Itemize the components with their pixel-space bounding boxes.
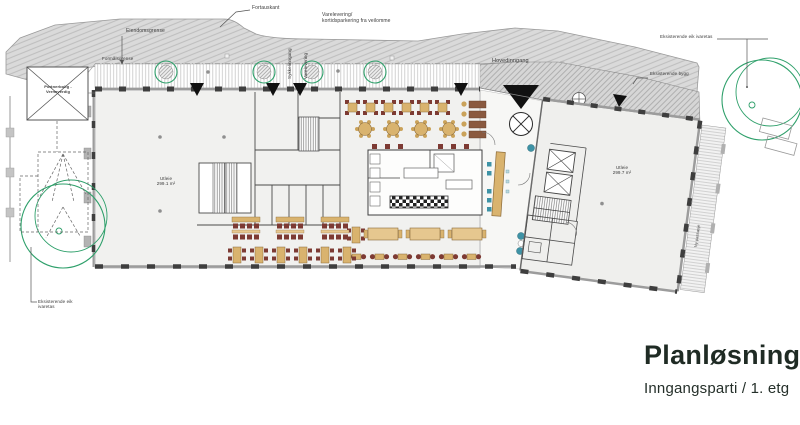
stair-main bbox=[199, 163, 251, 213]
oak-tree-right-icon bbox=[722, 58, 800, 140]
label-portnerbolig: Portnerbolig - Verneverdig bbox=[36, 85, 80, 95]
label-varelevering-note: Varelevering/ kortidsparkering fra veilo… bbox=[322, 12, 390, 24]
label-sykkelinngang: Sykkelinngang bbox=[287, 48, 292, 79]
label-utleie-left: Utleie 299.1 m² bbox=[138, 176, 194, 187]
page-title: Planløsning bbox=[644, 340, 800, 371]
canopy-strip bbox=[82, 64, 480, 89]
revolving-door-icon bbox=[510, 113, 533, 136]
label-eksisterende-eik-bottom: Eksisterende eik ivaretas bbox=[38, 299, 73, 310]
label-eksisterende-bygg: Eksisterende bygg bbox=[650, 71, 689, 76]
label-hovedinngang: Hovedinngang bbox=[492, 58, 529, 65]
label-utleie-right: Utleie 299.7 m² bbox=[594, 165, 650, 176]
planter bbox=[518, 233, 525, 240]
label-fortauskant: Fortauskant bbox=[252, 5, 280, 11]
label-formalsgrense: Formålsgrense bbox=[102, 56, 133, 61]
label-eksisterende-eik-top: Eksisterende eik ivaretas bbox=[660, 34, 713, 39]
stair-secondary bbox=[299, 117, 319, 151]
label-eiendomsgrense: Eiendomsgrense bbox=[126, 28, 165, 34]
floor-plan-page: Fortauskant Varelevering/ kortidsparkeri… bbox=[0, 0, 800, 425]
dashed-garden-structures bbox=[20, 121, 88, 238]
kitchen bbox=[368, 144, 482, 215]
label-varelevering: Varelevering bbox=[303, 53, 308, 79]
neighbor-structures bbox=[759, 118, 797, 155]
site-boundary-left bbox=[6, 96, 14, 262]
right-building bbox=[520, 99, 729, 295]
page-subtitle: Inngangsparti / 1. etg bbox=[644, 380, 789, 397]
planter bbox=[528, 145, 535, 152]
